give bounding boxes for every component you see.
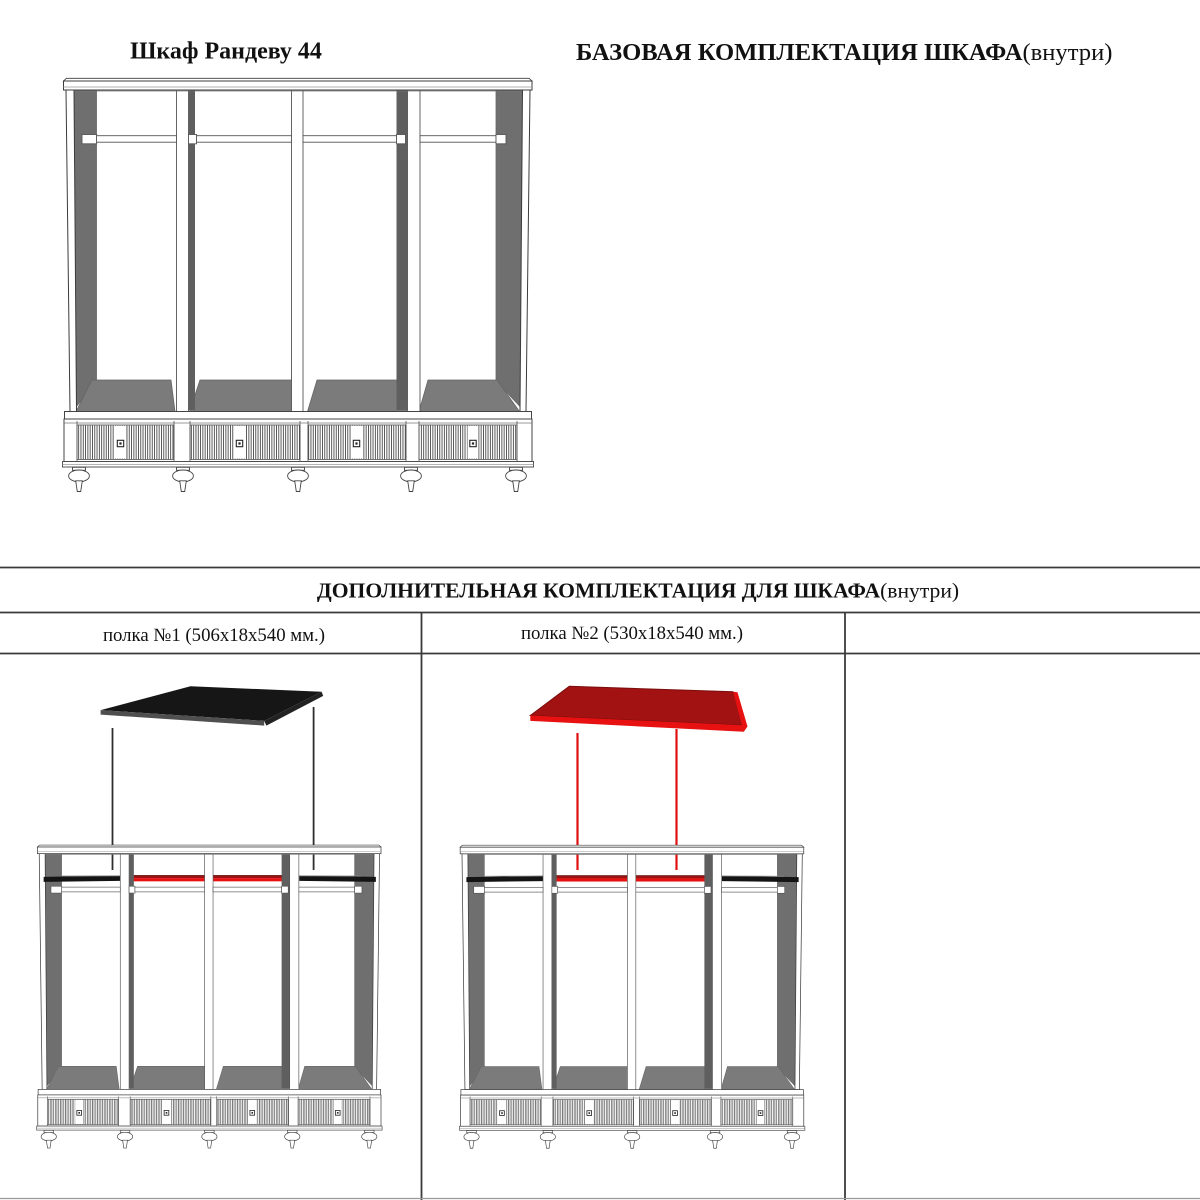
svg-text:ДОПОЛНИТЕЛЬНАЯ КОМПЛЕКТАЦИЯ ДЛ: ДОПОЛНИТЕЛЬНАЯ КОМПЛЕКТАЦИЯ ДЛЯ ШКАФА(вн…: [317, 579, 959, 603]
svg-text:БАЗОВАЯ КОМПЛЕКТАЦИЯ ШКАФА(вну: БАЗОВАЯ КОМПЛЕКТАЦИЯ ШКАФА(внутри): [576, 39, 1112, 66]
svg-text:полка №2 (530х18х540 мм.): полка №2 (530х18х540 мм.): [521, 623, 743, 644]
svg-text:полка №1 (506х18х540 мм.): полка №1 (506х18х540 мм.): [103, 625, 325, 646]
svg-text:Шкаф Рандеву 44: Шкаф Рандеву 44: [130, 39, 322, 65]
